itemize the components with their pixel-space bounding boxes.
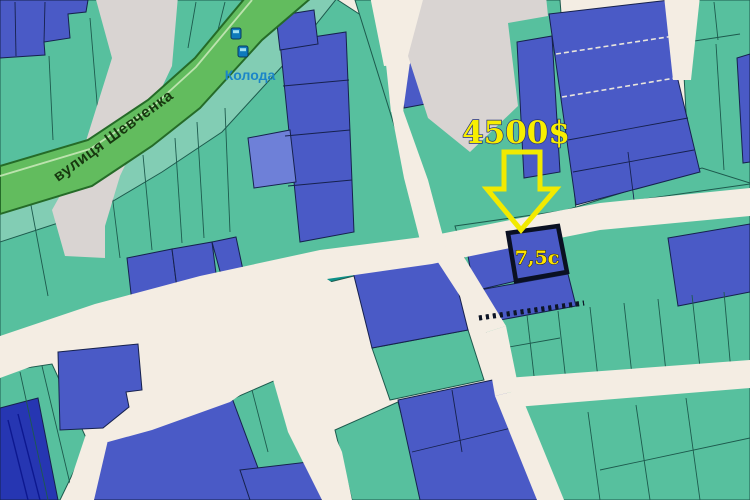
parcel-area-label: 7,5с <box>515 247 560 269</box>
parcel <box>248 130 296 188</box>
bus-stop-icon <box>238 46 248 57</box>
price-label: 4500$ <box>462 115 570 151</box>
place-label: Колода <box>225 67 276 83</box>
parcel <box>668 224 750 306</box>
bus-stop-icon <box>231 28 241 39</box>
listing-map-image[interactable]: вулиця Шевченка Колода 4500$ 7,5с <box>0 0 750 500</box>
parcel-map: вулиця Шевченка Колода 4500$ 7,5с <box>0 0 750 500</box>
